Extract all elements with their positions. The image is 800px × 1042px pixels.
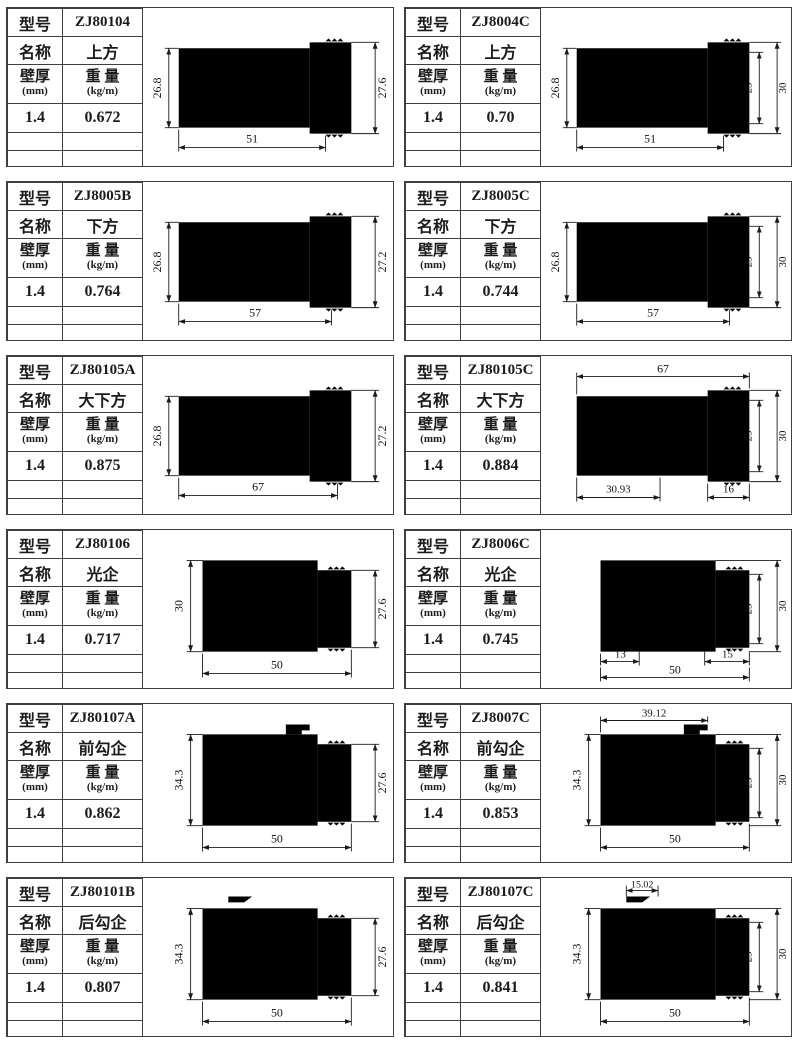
model-label: 型号 bbox=[406, 183, 461, 211]
model-label: 型号 bbox=[406, 531, 461, 559]
empty-cell bbox=[461, 499, 541, 516]
empty-cell bbox=[461, 133, 541, 151]
thickness-value: 1.4 bbox=[406, 452, 461, 481]
dimension-right: 27.2 bbox=[351, 216, 389, 307]
svg-text:34.3: 34.3 bbox=[172, 944, 186, 965]
empty-cell bbox=[461, 325, 541, 342]
weight-value: 0.70 bbox=[461, 104, 541, 133]
svg-text:34.3: 34.3 bbox=[570, 944, 584, 965]
svg-text:26.8: 26.8 bbox=[548, 78, 562, 99]
thickness-header: 壁厚(mm) bbox=[8, 413, 63, 452]
thickness-header: 壁厚(mm) bbox=[8, 761, 63, 800]
name-value: 上方 bbox=[63, 37, 143, 65]
name-label: 名称 bbox=[406, 211, 461, 239]
model-value: ZJ80104 bbox=[63, 9, 143, 37]
model-value: ZJ80105C bbox=[461, 357, 541, 385]
name-label: 名称 bbox=[406, 385, 461, 413]
empty-cell bbox=[406, 151, 461, 168]
dimension-right-outer: 30 bbox=[749, 42, 789, 133]
svg-text:27.2: 27.2 bbox=[375, 252, 389, 273]
profile-outline bbox=[601, 896, 750, 999]
weight-value: 0.672 bbox=[63, 104, 143, 133]
dimension-left: 34.3 bbox=[570, 734, 601, 825]
empty-cell bbox=[406, 307, 461, 325]
profile-card: 型号 ZJ8006C 名称 光企 壁厚(mm) 重 量(kg/m) 1.4 0.… bbox=[404, 529, 792, 689]
profile-drawing: 67 25 30 30.93 16 bbox=[541, 356, 791, 514]
empty-cell bbox=[63, 673, 143, 690]
thickness-header-line2: (mm) bbox=[406, 956, 460, 968]
empty-cell bbox=[63, 151, 143, 168]
profile-drawing: 34.3 27.6 50 bbox=[143, 878, 393, 1036]
dimension-left: 26.8 bbox=[150, 396, 179, 475]
weight-header-line1: 重 量 bbox=[484, 243, 518, 259]
weight-value: 0.745 bbox=[461, 626, 541, 655]
svg-text:27.6: 27.6 bbox=[375, 947, 389, 968]
spec-table: 型号 ZJ80106 名称 光企 壁厚(mm) 重 量(kg/m) 1.4 0.… bbox=[7, 530, 143, 689]
dimension-top: 67 bbox=[577, 362, 750, 395]
thickness-header-line2: (mm) bbox=[406, 260, 460, 272]
svg-text:25: 25 bbox=[742, 777, 754, 788]
empty-cell bbox=[406, 499, 461, 516]
empty-cell bbox=[406, 673, 461, 690]
dimension-bottom: 50 bbox=[601, 824, 750, 852]
dimension-left: 26.8 bbox=[548, 222, 577, 301]
profile-outline bbox=[179, 212, 352, 311]
thickness-header-line1: 壁厚 bbox=[418, 591, 448, 607]
svg-text:26.8: 26.8 bbox=[150, 426, 164, 447]
cross-section-diagram: 67 25 30 30.93 16 bbox=[541, 356, 791, 514]
spec-table: 型号 ZJ80105C 名称 大下方 壁厚(mm) 重 量(kg/m) 1.4 … bbox=[405, 356, 541, 515]
cross-section-diagram: 26.8 27.2 57 bbox=[143, 182, 393, 340]
empty-cell bbox=[461, 307, 541, 325]
name-label: 名称 bbox=[406, 37, 461, 65]
thickness-header-line1: 壁厚 bbox=[418, 765, 448, 781]
spec-table: 型号 ZJ8004C 名称 上方 壁厚(mm) 重 量(kg/m) 1.4 0.… bbox=[405, 8, 541, 167]
model-value: ZJ80107A bbox=[63, 705, 143, 733]
empty-cell bbox=[406, 829, 461, 847]
weight-header: 重 量(kg/m) bbox=[461, 413, 541, 452]
thickness-value: 1.4 bbox=[8, 278, 63, 307]
thickness-header-line2: (mm) bbox=[406, 86, 460, 98]
name-value: 光企 bbox=[461, 559, 541, 587]
dimension-bottom-right: 16 bbox=[708, 484, 750, 502]
model-label: 型号 bbox=[8, 357, 63, 385]
model-value: ZJ80106 bbox=[63, 531, 143, 559]
thickness-header-line1: 壁厚 bbox=[20, 591, 50, 607]
weight-value: 0.744 bbox=[461, 278, 541, 307]
thickness-header: 壁厚(mm) bbox=[406, 239, 461, 278]
thickness-header-line2: (mm) bbox=[406, 434, 460, 446]
profile-outline bbox=[601, 724, 750, 825]
weight-header-line1: 重 量 bbox=[86, 591, 120, 607]
profile-drawing: 25 30 13 15 50 bbox=[541, 530, 791, 688]
weight-value: 0.807 bbox=[63, 974, 143, 1003]
profile-drawing: 26.8 25 30 57 bbox=[541, 182, 791, 340]
thickness-header: 壁厚(mm) bbox=[406, 761, 461, 800]
weight-header-line2: (kg/m) bbox=[63, 782, 142, 794]
weight-header-line1: 重 量 bbox=[86, 417, 120, 433]
svg-text:30: 30 bbox=[777, 256, 789, 267]
profile-drawing: 39.12 34.3 25 30 50 bbox=[541, 704, 791, 862]
thickness-header-line1: 壁厚 bbox=[20, 69, 50, 85]
dimension-left: 26.8 bbox=[150, 48, 179, 127]
empty-cell bbox=[8, 1003, 63, 1021]
profile-card: 型号 ZJ8007C 名称 前勾企 壁厚(mm) 重 量(kg/m) 1.4 0… bbox=[404, 703, 792, 863]
svg-text:27.6: 27.6 bbox=[375, 599, 389, 620]
dimension-bottom: 50 bbox=[203, 824, 352, 852]
thickness-value: 1.4 bbox=[8, 104, 63, 133]
empty-cell bbox=[8, 829, 63, 847]
profile-outline bbox=[203, 896, 352, 999]
svg-text:50: 50 bbox=[271, 658, 283, 672]
empty-cell bbox=[461, 829, 541, 847]
weight-header: 重 量(kg/m) bbox=[63, 65, 143, 104]
svg-text:30: 30 bbox=[777, 82, 789, 93]
empty-cell bbox=[63, 481, 143, 499]
svg-text:25: 25 bbox=[742, 430, 754, 441]
profile-outline bbox=[179, 386, 352, 485]
svg-text:30: 30 bbox=[777, 774, 789, 785]
weight-header-line1: 重 量 bbox=[484, 939, 518, 955]
empty-cell bbox=[8, 655, 63, 673]
thickness-value: 1.4 bbox=[8, 800, 63, 829]
dimension-left: 26.8 bbox=[548, 48, 577, 127]
name-value: 光企 bbox=[63, 559, 143, 587]
empty-cell bbox=[63, 325, 143, 342]
svg-text:50: 50 bbox=[669, 662, 681, 676]
svg-text:25: 25 bbox=[742, 603, 754, 614]
empty-cell bbox=[406, 655, 461, 673]
profile-outline bbox=[203, 560, 352, 651]
profile-outline bbox=[203, 724, 352, 825]
cross-section-diagram: 25 30 13 15 50 bbox=[541, 530, 791, 688]
name-value: 大下方 bbox=[63, 385, 143, 413]
svg-text:51: 51 bbox=[644, 132, 656, 146]
thickness-header-line2: (mm) bbox=[406, 782, 460, 794]
svg-text:57: 57 bbox=[249, 306, 261, 320]
svg-text:27.6: 27.6 bbox=[375, 78, 389, 99]
empty-cell bbox=[406, 1021, 461, 1038]
thickness-header: 壁厚(mm) bbox=[406, 935, 461, 974]
weight-header-line2: (kg/m) bbox=[63, 956, 142, 968]
dimension-top: 15.02 bbox=[626, 880, 658, 897]
weight-header: 重 量(kg/m) bbox=[63, 239, 143, 278]
svg-text:13: 13 bbox=[615, 649, 626, 661]
name-value: 前勾企 bbox=[63, 733, 143, 761]
svg-text:50: 50 bbox=[271, 832, 283, 846]
weight-value: 0.764 bbox=[63, 278, 143, 307]
dimension-left: 34.3 bbox=[172, 908, 203, 999]
thickness-header-line2: (mm) bbox=[8, 260, 62, 272]
weight-header-line1: 重 量 bbox=[484, 765, 518, 781]
thickness-header: 壁厚(mm) bbox=[8, 587, 63, 626]
empty-cell bbox=[461, 655, 541, 673]
spec-table: 型号 ZJ80104 名称 上方 壁厚(mm) 重 量(kg/m) 1.4 0.… bbox=[7, 8, 143, 167]
dimension-bottom: 57 bbox=[577, 304, 730, 326]
profile-drawing: 34.3 27.6 50 bbox=[143, 704, 393, 862]
model-label: 型号 bbox=[406, 705, 461, 733]
weight-header: 重 量(kg/m) bbox=[461, 935, 541, 974]
thickness-header-line1: 壁厚 bbox=[418, 417, 448, 433]
model-label: 型号 bbox=[406, 879, 461, 907]
profile-outline bbox=[577, 212, 750, 311]
dimension-right-outer: 30 bbox=[749, 216, 789, 307]
empty-cell bbox=[8, 133, 63, 151]
thickness-value: 1.4 bbox=[8, 452, 63, 481]
thickness-value: 1.4 bbox=[406, 626, 461, 655]
empty-cell bbox=[8, 325, 63, 342]
dimension-bottom: 50 bbox=[601, 998, 750, 1026]
model-label: 型号 bbox=[8, 705, 63, 733]
svg-text:30: 30 bbox=[777, 948, 789, 959]
thickness-value: 1.4 bbox=[406, 278, 461, 307]
empty-cell bbox=[63, 847, 143, 864]
empty-cell bbox=[63, 499, 143, 516]
dimension-bottom: 50 bbox=[601, 662, 750, 681]
empty-cell bbox=[8, 1021, 63, 1038]
empty-cell bbox=[461, 847, 541, 864]
cross-section-diagram: 30 27.6 50 bbox=[143, 530, 393, 688]
profile-card: 型号 ZJ8004C 名称 上方 壁厚(mm) 重 量(kg/m) 1.4 0.… bbox=[404, 7, 792, 167]
empty-cell bbox=[8, 499, 63, 516]
weight-header-line2: (kg/m) bbox=[63, 260, 142, 272]
profile-card: 型号 ZJ80106 名称 光企 壁厚(mm) 重 量(kg/m) 1.4 0.… bbox=[6, 529, 394, 689]
empty-cell bbox=[406, 481, 461, 499]
profile-drawing: 26.8 27.2 57 bbox=[143, 182, 393, 340]
svg-text:26.8: 26.8 bbox=[150, 252, 164, 273]
dimension-right: 27.6 bbox=[351, 570, 389, 647]
weight-header-line2: (kg/m) bbox=[63, 86, 142, 98]
thickness-header-line2: (mm) bbox=[8, 782, 62, 794]
thickness-header-line2: (mm) bbox=[8, 434, 62, 446]
empty-cell bbox=[406, 133, 461, 151]
weight-value: 0.841 bbox=[461, 974, 541, 1003]
thickness-header: 壁厚(mm) bbox=[406, 587, 461, 626]
empty-cell bbox=[461, 1003, 541, 1021]
svg-text:34.3: 34.3 bbox=[570, 770, 584, 791]
profile-drawing: 26.8 25 30 51 bbox=[541, 8, 791, 166]
weight-header-line2: (kg/m) bbox=[461, 956, 540, 968]
model-label: 型号 bbox=[8, 9, 63, 37]
spec-table: 型号 ZJ8007C 名称 前勾企 壁厚(mm) 重 量(kg/m) 1.4 0… bbox=[405, 704, 541, 863]
model-value: ZJ8005B bbox=[63, 183, 143, 211]
svg-text:27.6: 27.6 bbox=[375, 773, 389, 794]
thickness-header-line2: (mm) bbox=[406, 608, 460, 620]
model-value: ZJ8006C bbox=[461, 531, 541, 559]
profile-outline bbox=[577, 386, 750, 485]
profile-drawing: 15.02 34.3 25 30 50 bbox=[541, 878, 791, 1036]
profile-card: 型号 ZJ80104 名称 上方 壁厚(mm) 重 量(kg/m) 1.4 0.… bbox=[6, 7, 394, 167]
weight-header: 重 量(kg/m) bbox=[63, 761, 143, 800]
weight-header: 重 量(kg/m) bbox=[461, 761, 541, 800]
spec-table: 型号 ZJ80107A 名称 前勾企 壁厚(mm) 重 量(kg/m) 1.4 … bbox=[7, 704, 143, 863]
svg-text:51: 51 bbox=[246, 132, 258, 146]
cross-section-diagram: 15.02 34.3 25 30 50 bbox=[541, 878, 791, 1036]
profile-card: 型号 ZJ80105A 名称 大下方 壁厚(mm) 重 量(kg/m) 1.4 … bbox=[6, 355, 394, 515]
svg-text:50: 50 bbox=[669, 1006, 681, 1020]
weight-value: 0.884 bbox=[461, 452, 541, 481]
name-value: 上方 bbox=[461, 37, 541, 65]
svg-text:25: 25 bbox=[742, 951, 754, 962]
model-value: ZJ8004C bbox=[461, 9, 541, 37]
weight-value: 0.875 bbox=[63, 452, 143, 481]
empty-cell bbox=[63, 1021, 143, 1038]
empty-cell bbox=[8, 673, 63, 690]
thickness-header-line2: (mm) bbox=[8, 86, 62, 98]
empty-cell bbox=[406, 325, 461, 342]
svg-text:67: 67 bbox=[657, 362, 669, 376]
empty-cell bbox=[8, 847, 63, 864]
weight-header-line2: (kg/m) bbox=[63, 608, 142, 620]
dimension-right: 27.6 bbox=[351, 42, 389, 133]
model-value: ZJ8007C bbox=[461, 705, 541, 733]
spec-table: 型号 ZJ80107C 名称 后勾企 壁厚(mm) 重 量(kg/m) 1.4 … bbox=[405, 878, 541, 1037]
name-value: 后勾企 bbox=[63, 907, 143, 935]
empty-cell bbox=[63, 829, 143, 847]
name-label: 名称 bbox=[8, 559, 63, 587]
svg-text:25: 25 bbox=[742, 82, 754, 93]
profile-card: 型号 ZJ80105C 名称 大下方 壁厚(mm) 重 量(kg/m) 1.4 … bbox=[404, 355, 792, 515]
svg-text:26.8: 26.8 bbox=[548, 252, 562, 273]
empty-cell bbox=[406, 847, 461, 864]
empty-cell bbox=[461, 1021, 541, 1038]
thickness-header-line1: 壁厚 bbox=[20, 939, 50, 955]
model-label: 型号 bbox=[406, 357, 461, 385]
cross-section-diagram: 39.12 34.3 25 30 50 bbox=[541, 704, 791, 862]
weight-header: 重 量(kg/m) bbox=[461, 239, 541, 278]
svg-text:30: 30 bbox=[172, 600, 186, 612]
profile-card: 型号 ZJ80107A 名称 前勾企 壁厚(mm) 重 量(kg/m) 1.4 … bbox=[6, 703, 394, 863]
thickness-header: 壁厚(mm) bbox=[8, 239, 63, 278]
name-label: 名称 bbox=[8, 211, 63, 239]
profile-drawing: 30 27.6 50 bbox=[143, 530, 393, 688]
dimension-bottom-left: 30.93 bbox=[577, 478, 660, 502]
weight-header-line1: 重 量 bbox=[86, 69, 120, 85]
weight-header-line2: (kg/m) bbox=[461, 608, 540, 620]
thickness-header-line1: 壁厚 bbox=[418, 69, 448, 85]
empty-cell bbox=[461, 673, 541, 690]
svg-text:30: 30 bbox=[777, 430, 789, 441]
name-label: 名称 bbox=[8, 733, 63, 761]
empty-cell bbox=[63, 1003, 143, 1021]
profile-card: 型号 ZJ80107C 名称 后勾企 壁厚(mm) 重 量(kg/m) 1.4 … bbox=[404, 877, 792, 1037]
profile-card: 型号 ZJ80101B 名称 后勾企 壁厚(mm) 重 量(kg/m) 1.4 … bbox=[6, 877, 394, 1037]
model-value: ZJ80101B bbox=[63, 879, 143, 907]
spec-table: 型号 ZJ8005C 名称 下方 壁厚(mm) 重 量(kg/m) 1.4 0.… bbox=[405, 182, 541, 341]
weight-header-line1: 重 量 bbox=[484, 591, 518, 607]
cross-section-diagram: 34.3 27.6 50 bbox=[143, 878, 393, 1036]
weight-header: 重 量(kg/m) bbox=[461, 587, 541, 626]
weight-header-line1: 重 量 bbox=[86, 939, 120, 955]
name-label: 名称 bbox=[406, 733, 461, 761]
weight-header-line1: 重 量 bbox=[484, 417, 518, 433]
dimension-right: 27.6 bbox=[351, 918, 389, 995]
empty-cell bbox=[461, 481, 541, 499]
weight-header-line1: 重 量 bbox=[86, 243, 120, 259]
profile-outline bbox=[577, 38, 750, 137]
weight-header-line1: 重 量 bbox=[86, 765, 120, 781]
dimension-right-outer: 30 bbox=[749, 390, 789, 481]
profile-card: 型号 ZJ8005C 名称 下方 壁厚(mm) 重 量(kg/m) 1.4 0.… bbox=[404, 181, 792, 341]
weight-header: 重 量(kg/m) bbox=[63, 587, 143, 626]
svg-text:30: 30 bbox=[777, 600, 789, 611]
weight-value: 0.853 bbox=[461, 800, 541, 829]
empty-cell bbox=[8, 307, 63, 325]
name-label: 名称 bbox=[406, 559, 461, 587]
dimension-left: 34.3 bbox=[570, 908, 601, 999]
cross-section-diagram: 26.8 27.6 51 bbox=[143, 8, 393, 166]
spec-table: 型号 ZJ8005B 名称 下方 壁厚(mm) 重 量(kg/m) 1.4 0.… bbox=[7, 182, 143, 341]
cross-section-diagram: 34.3 27.6 50 bbox=[143, 704, 393, 862]
svg-text:25: 25 bbox=[742, 256, 754, 267]
weight-value: 0.862 bbox=[63, 800, 143, 829]
svg-text:26.8: 26.8 bbox=[150, 78, 164, 99]
name-label: 名称 bbox=[8, 37, 63, 65]
spec-table: 型号 ZJ8006C 名称 光企 壁厚(mm) 重 量(kg/m) 1.4 0.… bbox=[405, 530, 541, 689]
empty-cell bbox=[63, 307, 143, 325]
dimension-right: 27.2 bbox=[351, 390, 389, 481]
name-value: 下方 bbox=[461, 211, 541, 239]
model-label: 型号 bbox=[8, 183, 63, 211]
name-value: 前勾企 bbox=[461, 733, 541, 761]
weight-header-line2: (kg/m) bbox=[461, 782, 540, 794]
thickness-header-line1: 壁厚 bbox=[20, 243, 50, 259]
thickness-header: 壁厚(mm) bbox=[8, 65, 63, 104]
thickness-header-line1: 壁厚 bbox=[418, 243, 448, 259]
model-value: ZJ80105A bbox=[63, 357, 143, 385]
thickness-header-line1: 壁厚 bbox=[20, 765, 50, 781]
profile-drawing: 26.8 27.2 67 bbox=[143, 356, 393, 514]
cross-section-diagram: 26.8 25 30 57 bbox=[541, 182, 791, 340]
cross-section-diagram: 26.8 27.2 67 bbox=[143, 356, 393, 514]
empty-cell bbox=[63, 133, 143, 151]
svg-text:16: 16 bbox=[723, 484, 734, 496]
model-value: ZJ8005C bbox=[461, 183, 541, 211]
name-label: 名称 bbox=[8, 907, 63, 935]
name-value: 后勾企 bbox=[461, 907, 541, 935]
dimension-bottom: 51 bbox=[179, 130, 326, 152]
thickness-value: 1.4 bbox=[406, 974, 461, 1003]
thickness-value: 1.4 bbox=[8, 974, 63, 1003]
dimension-left: 34.3 bbox=[172, 734, 203, 825]
thickness-header-line2: (mm) bbox=[8, 956, 62, 968]
dimension-left: 26.8 bbox=[150, 222, 179, 301]
weight-header: 重 量(kg/m) bbox=[63, 935, 143, 974]
empty-cell bbox=[63, 655, 143, 673]
dimension-bottom: 51 bbox=[577, 130, 724, 152]
svg-text:15.02: 15.02 bbox=[631, 880, 653, 891]
thickness-header: 壁厚(mm) bbox=[406, 65, 461, 104]
model-label: 型号 bbox=[406, 9, 461, 37]
profile-drawing: 26.8 27.6 51 bbox=[143, 8, 393, 166]
dimension-left: 30 bbox=[172, 560, 203, 651]
thickness-value: 1.4 bbox=[406, 800, 461, 829]
cross-section-diagram: 26.8 25 30 51 bbox=[541, 8, 791, 166]
dimension-right: 27.6 bbox=[351, 744, 389, 821]
name-label: 名称 bbox=[406, 907, 461, 935]
name-value: 下方 bbox=[63, 211, 143, 239]
weight-value: 0.717 bbox=[63, 626, 143, 655]
spec-table: 型号 ZJ80101B 名称 后勾企 壁厚(mm) 重 量(kg/m) 1.4 … bbox=[7, 878, 143, 1037]
thickness-header-line1: 壁厚 bbox=[418, 939, 448, 955]
svg-text:50: 50 bbox=[271, 1006, 283, 1020]
spec-table: 型号 ZJ80105A 名称 大下方 壁厚(mm) 重 量(kg/m) 1.4 … bbox=[7, 356, 143, 515]
weight-header-line2: (kg/m) bbox=[63, 434, 142, 446]
weight-header-line2: (kg/m) bbox=[461, 86, 540, 98]
model-label: 型号 bbox=[8, 879, 63, 907]
svg-text:39.12: 39.12 bbox=[642, 708, 667, 720]
thickness-header-line2: (mm) bbox=[8, 608, 62, 620]
